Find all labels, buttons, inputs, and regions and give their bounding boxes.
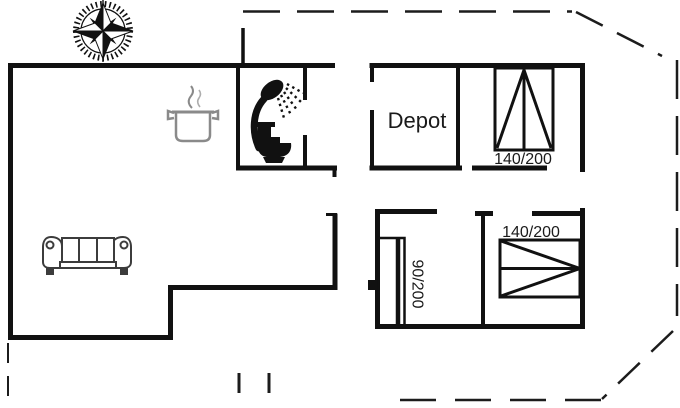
steam-wisp-1 — [189, 86, 193, 108]
compass-cardinal-points — [73, 3, 133, 59]
wall-living-room-outline — [11, 66, 338, 338]
sofa-foot-left — [47, 268, 53, 274]
sofa-arm-scroll-left — [47, 242, 54, 249]
boundary-diagonal-top-right — [576, 12, 662, 56]
pot-handle-left — [168, 111, 174, 119]
sofa-foot-right — [121, 268, 127, 274]
steam-wisp-2 — [198, 90, 201, 107]
sofa-arm-scroll-right — [121, 242, 128, 249]
boundary-diagonal-bottom-right — [602, 331, 673, 399]
double-bed-top-right — [495, 68, 553, 150]
floor-plan-drawing: Depot 140/200 90/200 140/200 — [0, 0, 680, 408]
double-bed-bottom-right — [500, 240, 580, 297]
bed-size-label-single: 90/200 — [409, 260, 426, 309]
toilet-base — [263, 157, 285, 163]
bed-size-label-bottom-right: 140/200 — [502, 224, 560, 241]
toilet-icon — [256, 122, 291, 163]
labels: Depot 140/200 90/200 140/200 — [388, 108, 560, 309]
cooking-pot-icon — [168, 86, 218, 141]
bed-size-label-top-right: 140/200 — [494, 151, 552, 168]
compass-rose-icon — [73, 0, 133, 62]
wall-hinge-block — [368, 280, 376, 290]
toilet-body — [256, 122, 291, 157]
boundary-gate-posts — [239, 373, 269, 393]
sofa-icon — [43, 237, 131, 274]
sofa-seat-front — [60, 262, 116, 268]
depot-room-label: Depot — [388, 108, 447, 133]
sofa-cushions — [62, 238, 114, 262]
pot-body — [176, 113, 210, 141]
terrace-boundary — [8, 12, 677, 401]
pot-handle-right — [212, 111, 218, 119]
single-bed-bottom — [379, 238, 405, 326]
bed-frame — [379, 238, 405, 326]
floor-plan: Depot 140/200 90/200 140/200 — [0, 0, 680, 408]
walls — [11, 28, 583, 338]
